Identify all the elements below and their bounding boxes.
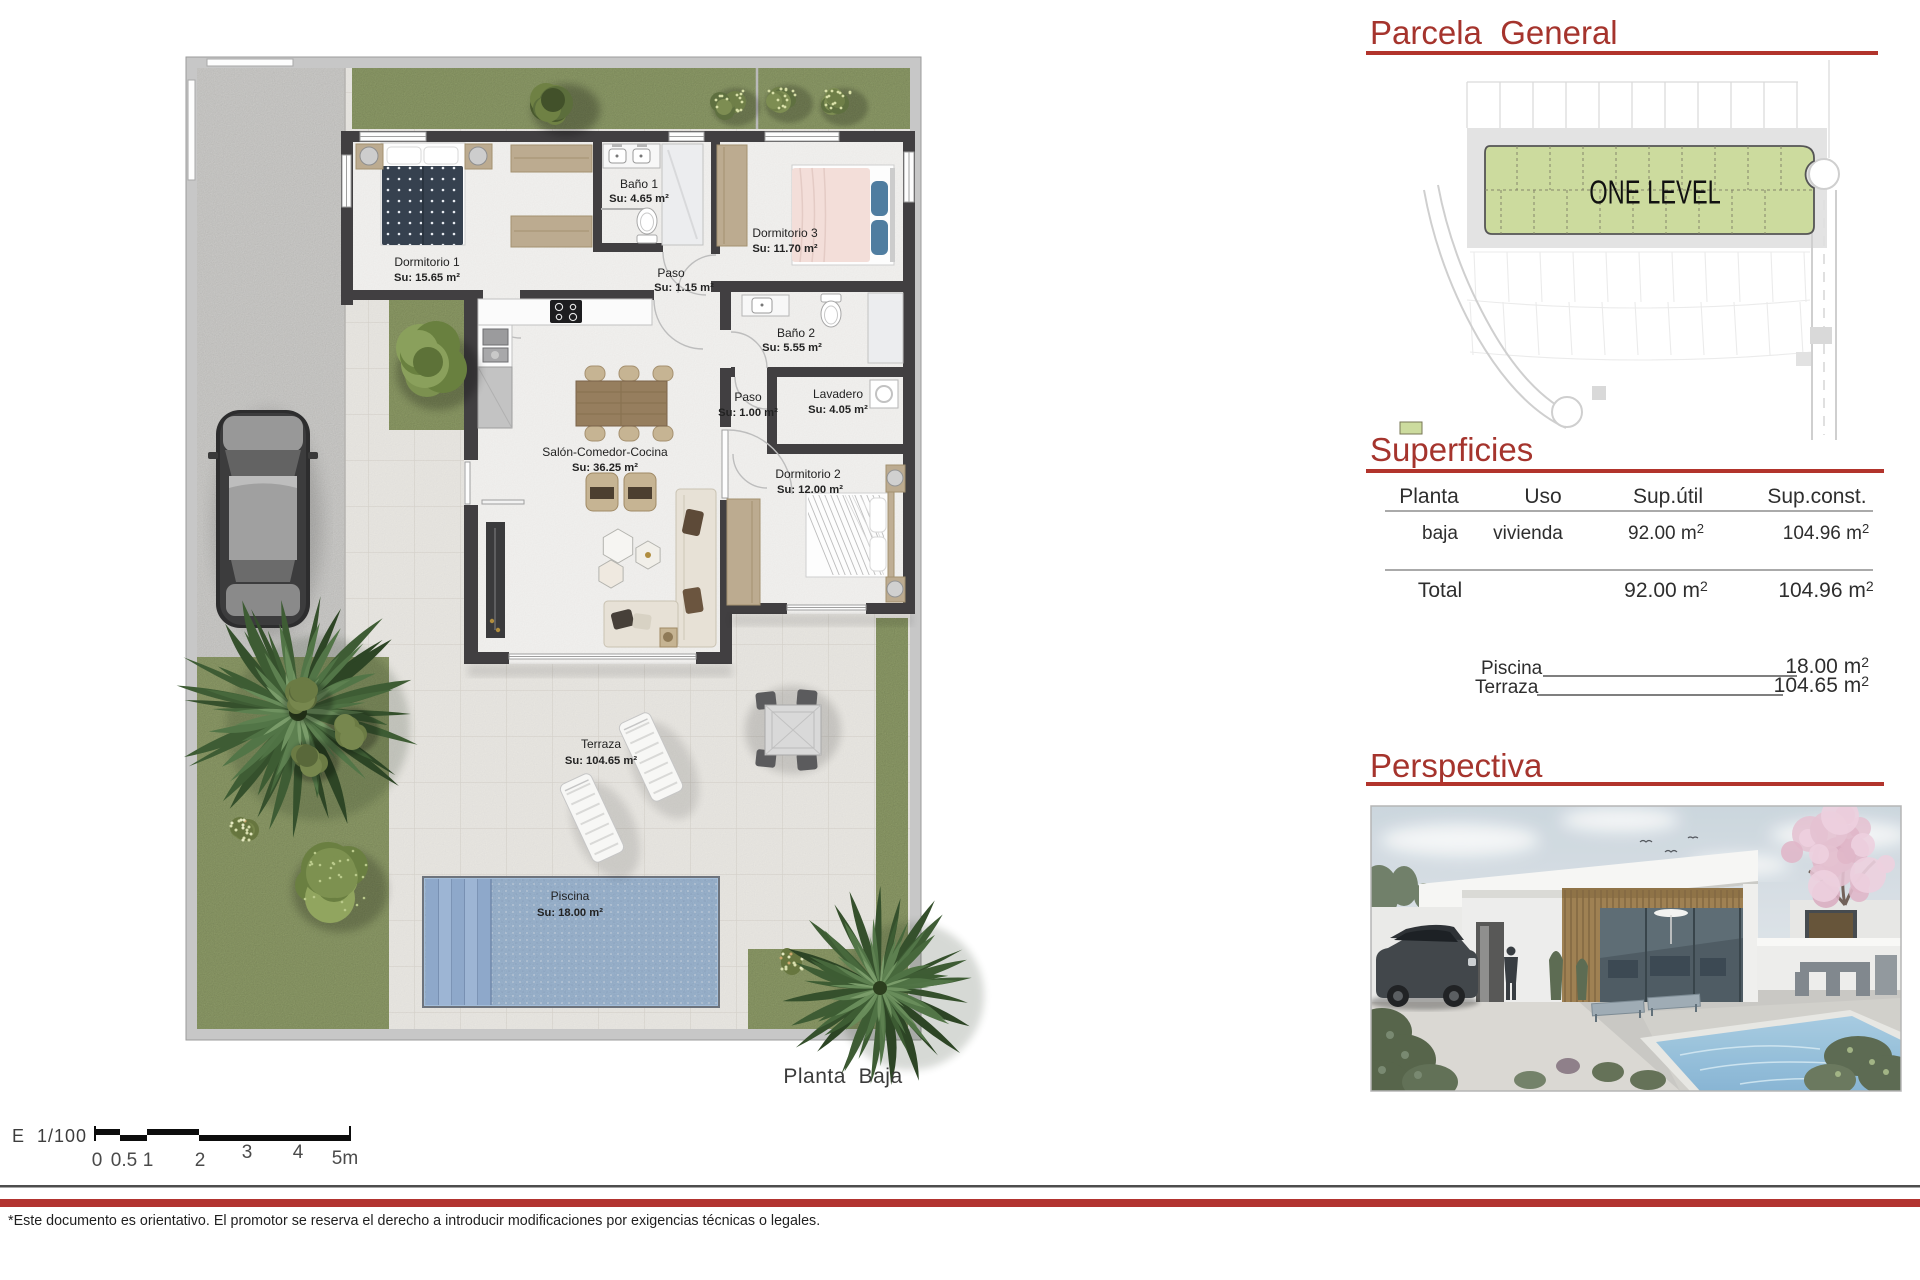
svg-text:Uso: Uso xyxy=(1524,485,1561,508)
svg-text:0: 0 xyxy=(92,1150,103,1171)
svg-text:Su: 104.65 m²: Su: 104.65 m² xyxy=(565,755,637,767)
svg-text:Su: 1.00 m²: Su: 1.00 m² xyxy=(718,407,778,419)
svg-text:104.65 m2: 104.65 m2 xyxy=(1774,673,1870,697)
svg-text:4: 4 xyxy=(293,1142,304,1163)
svg-text:vivienda: vivienda xyxy=(1493,523,1563,544)
svg-text:Planta: Planta xyxy=(1399,485,1459,508)
svg-text:Su: 15.65 m²: Su: 15.65 m² xyxy=(394,272,460,284)
svg-text:baja: baja xyxy=(1422,523,1458,544)
svg-text:Paso: Paso xyxy=(734,390,762,404)
svg-text:104.96 m2: 104.96 m2 xyxy=(1778,578,1874,602)
svg-text:104.96 m2: 104.96 m2 xyxy=(1783,521,1869,544)
svg-text:Dormitorio 1: Dormitorio 1 xyxy=(394,255,460,269)
svg-text:Su: 12.00 m²: Su: 12.00 m² xyxy=(777,484,843,496)
svg-text:Sup.útil: Sup.útil xyxy=(1633,485,1703,508)
svg-text:Su: 4.65 m²: Su: 4.65 m² xyxy=(609,193,669,205)
svg-text:Total: Total xyxy=(1418,579,1462,602)
svg-text:0.5: 0.5 xyxy=(111,1150,137,1171)
svg-text:92.00 m2: 92.00 m2 xyxy=(1624,578,1708,602)
svg-text:Piscina: Piscina xyxy=(551,889,590,903)
svg-text:Perspectiva: Perspectiva xyxy=(1370,747,1543,784)
svg-text:Parcela General: Parcela General xyxy=(1370,14,1618,51)
svg-text:Su: 11.70 m²: Su: 11.70 m² xyxy=(752,243,818,255)
svg-text:Su: 5.55 m²: Su: 5.55 m² xyxy=(762,342,822,354)
svg-text:Su: 18.00 m²: Su: 18.00 m² xyxy=(537,907,603,919)
svg-text:Su: 1.15 m²: Su: 1.15 m² xyxy=(654,282,714,294)
svg-text:Piscina: Piscina xyxy=(1481,658,1543,679)
svg-text:*Este documento es orientativo: *Este documento es orientativo. El promo… xyxy=(8,1213,820,1229)
svg-text:Dormitorio 2: Dormitorio 2 xyxy=(775,467,841,481)
svg-text:Baño 1: Baño 1 xyxy=(620,177,658,191)
svg-text:3: 3 xyxy=(242,1142,253,1163)
svg-text:Dormitorio 3: Dormitorio 3 xyxy=(752,226,818,240)
svg-text:Terraza: Terraza xyxy=(1475,677,1539,698)
svg-text:Terraza: Terraza xyxy=(581,737,621,751)
svg-text:Planta Baja: Planta Baja xyxy=(783,1065,902,1088)
svg-text:5m: 5m xyxy=(332,1148,358,1169)
svg-text:92.00 m2: 92.00 m2 xyxy=(1628,521,1704,544)
svg-text:Paso: Paso xyxy=(657,266,685,280)
svg-text:Superficies: Superficies xyxy=(1370,431,1533,468)
svg-text:ONE LEVEL: ONE LEVEL xyxy=(1589,175,1721,212)
svg-text:Lavadero: Lavadero xyxy=(813,387,863,401)
svg-text:Salón-Comedor-Cocina: Salón-Comedor-Cocina xyxy=(542,445,668,459)
svg-text:Baño 2: Baño 2 xyxy=(777,326,815,340)
svg-text:2: 2 xyxy=(195,1150,206,1171)
svg-text:Su: 36.25 m²: Su: 36.25 m² xyxy=(572,462,638,474)
svg-text:Sup.const.: Sup.const. xyxy=(1767,485,1866,508)
svg-text:1: 1 xyxy=(143,1150,154,1171)
svg-text:Su: 4.05 m²: Su: 4.05 m² xyxy=(808,404,868,416)
svg-text:E 1/100: E 1/100 xyxy=(12,1126,87,1146)
